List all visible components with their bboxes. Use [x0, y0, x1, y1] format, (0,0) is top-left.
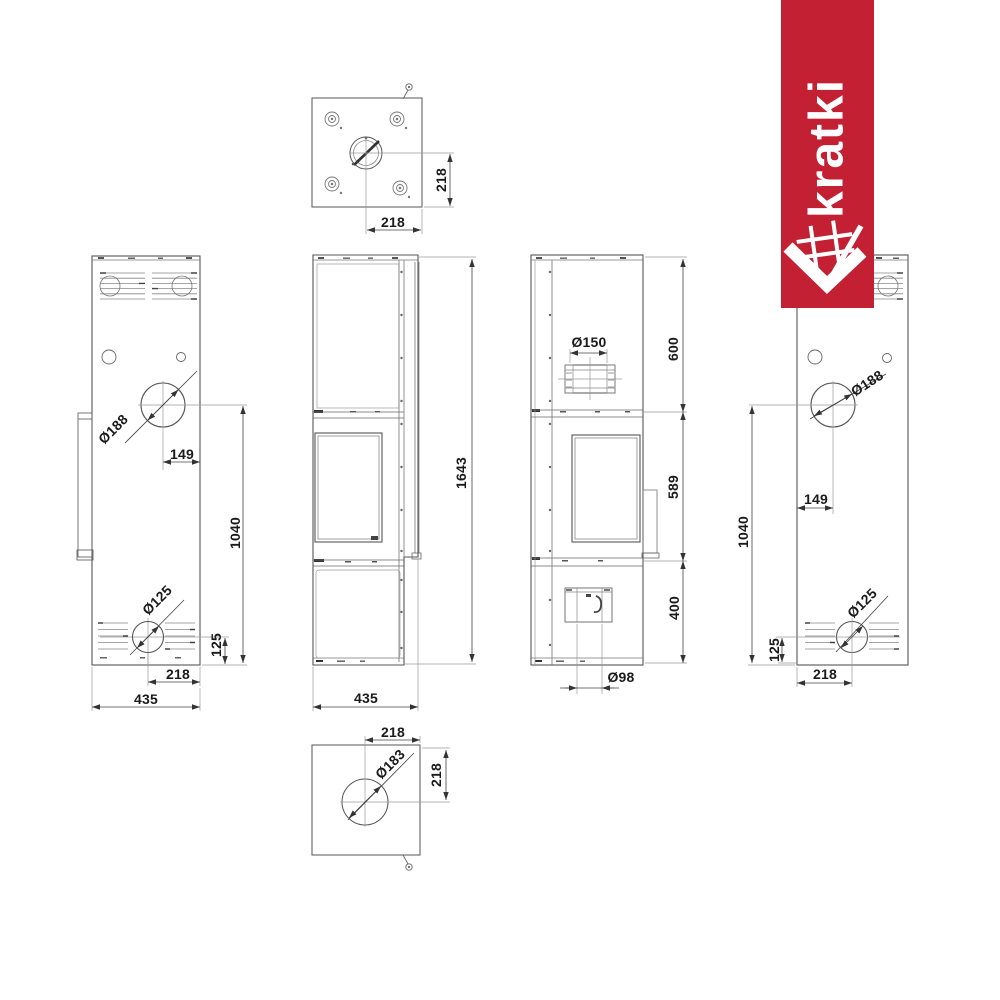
kratki-logo-text: kratki [800, 78, 855, 218]
dim-topview-offset-y: 218 [433, 168, 449, 192]
dim-backr-flue-center-height: 1040 [735, 516, 751, 548]
dim-back-inlet-center-height: 125 [208, 633, 224, 657]
dim-front-width: 435 [354, 690, 378, 706]
dim-back-flue-center-height: 1040 [227, 517, 243, 549]
dim-side-top-section: 600 [665, 337, 681, 361]
side-handle [77, 413, 93, 560]
dim-bottomview-offset-y: 218 [428, 763, 444, 787]
dim-back-inlet-offset: 218 [166, 666, 190, 682]
top-view-drawing [312, 84, 454, 234]
front-handle-bar [412, 262, 421, 559]
bottom-view-drawing [312, 736, 450, 870]
door-edge-strip [535, 260, 552, 665]
dim-side-middle-section: 589 [665, 475, 681, 499]
firebox-window [315, 433, 382, 542]
dim-backr-inlet-offset: 218 [813, 666, 837, 682]
flue-stub [558, 357, 622, 400]
side-view-drawing [531, 255, 687, 694]
dim-bottomview-offset-x: 218 [381, 724, 405, 740]
rear-panel [642, 490, 659, 558]
dim-front-total-height: 1643 [453, 457, 469, 489]
back-view-right-drawing [748, 255, 908, 687]
dim-side-flue-stub-diameter: Ø150 [571, 334, 606, 350]
dim-side-air-inlet-diameter: Ø98 [607, 669, 634, 685]
technical-drawing-sheet: 218 218 Ø188 149 1040 Ø125 125 218 435 1… [0, 0, 1000, 1000]
ground-screw-leader [403, 84, 412, 99]
dim-backr-flue-offset: 149 [804, 491, 828, 507]
front-view-drawing [313, 255, 476, 711]
kratki-logo-icon [781, 212, 874, 308]
dim-backr-inlet-center-height: 125 [766, 638, 782, 662]
air-inlet-connector [565, 588, 612, 622]
dim-back-flue-offset: 149 [170, 446, 194, 462]
bottom-vent-grills [98, 623, 195, 649]
ground-screw-leader-bottom [403, 855, 412, 870]
screw-rosettes [325, 112, 410, 198]
firebox-window-side [572, 435, 640, 542]
dim-side-bottom-section: 400 [666, 596, 682, 620]
top-vent-grills [100, 273, 197, 299]
dim-back-width: 435 [134, 691, 158, 707]
kratki-logo-banner: kratki [781, 0, 874, 308]
dim-topview-offset-x: 218 [381, 214, 405, 230]
